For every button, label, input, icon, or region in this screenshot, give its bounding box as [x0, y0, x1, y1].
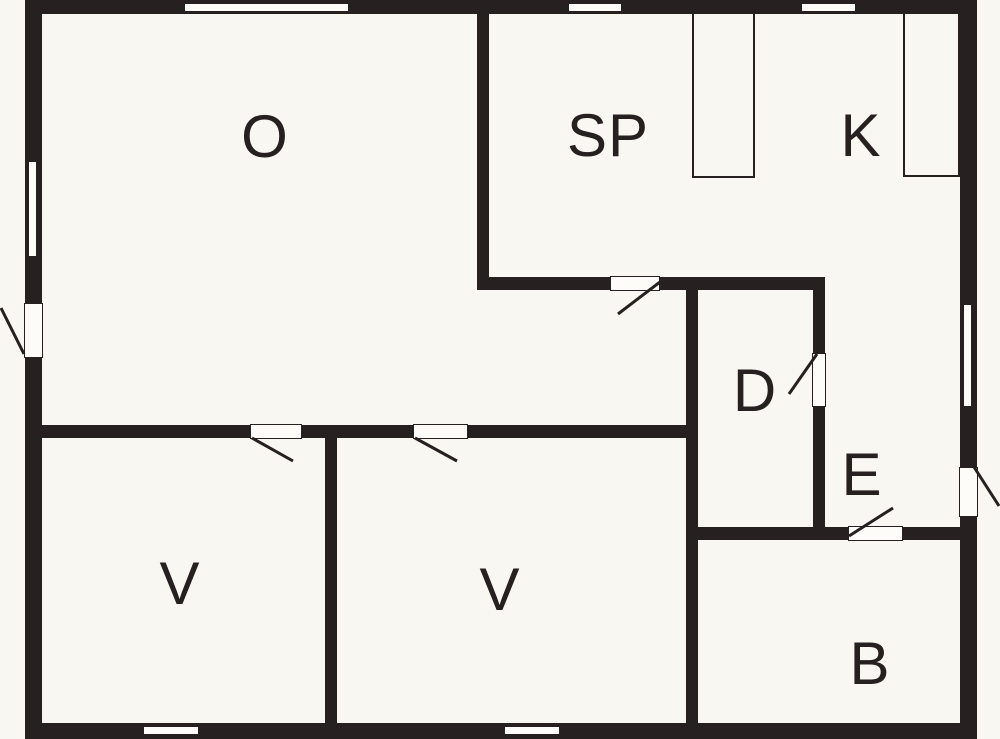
window-right-k-e [962, 303, 973, 408]
window-top-k [800, 2, 857, 13]
wall-v1-v2-divider-vertical [325, 438, 337, 723]
window-bottom-v2 [503, 725, 561, 736]
room-label-b: B [849, 634, 890, 694]
wall-middle-left-segment [42, 425, 250, 438]
floor-plan: O SP K D E V V B [0, 0, 1000, 739]
window-left-o [27, 160, 38, 258]
window-top-o [183, 2, 350, 13]
wall-d-right-lower [813, 407, 825, 540]
door-opening-d [812, 353, 826, 407]
fixture-box-right-of-k [903, 12, 960, 177]
door-swing-v1 [252, 438, 293, 461]
room-label-sp: SP [567, 106, 649, 166]
wall-d-right-upper [813, 277, 825, 353]
door-opening-sp [610, 276, 660, 291]
door-swing-left-exterior [1, 308, 24, 354]
room-label-k: K [840, 106, 881, 166]
wall-d-e-bottom [698, 527, 848, 540]
room-label-d: D [733, 361, 777, 421]
wall-middle-center-segment [302, 425, 413, 438]
door-opening-left-exterior [24, 303, 43, 358]
door-opening-v2 [413, 424, 468, 439]
fixture-box-between-sp-and-k [692, 12, 755, 178]
door-opening-v1 [250, 424, 302, 439]
window-bottom-v1 [142, 725, 200, 736]
room-label-v2: V [479, 560, 520, 620]
wall-sp-bottom [477, 277, 610, 290]
door-opening-e-b [848, 526, 903, 541]
room-label-v1: V [159, 554, 200, 614]
wall-d-v2-b-divider-vertical [686, 277, 698, 723]
room-label-o: O [241, 107, 289, 167]
room-label-e: E [841, 445, 882, 505]
wall-o-sp-vertical [477, 14, 489, 290]
exterior-wall-left [25, 0, 42, 739]
wall-d-top [660, 277, 823, 290]
door-opening-right-exterior [959, 467, 978, 517]
wall-middle-right-segment [468, 425, 686, 438]
window-top-sp [567, 2, 623, 13]
door-swing-v2 [415, 438, 457, 461]
wall-e-bottom-right-stub [903, 527, 960, 540]
